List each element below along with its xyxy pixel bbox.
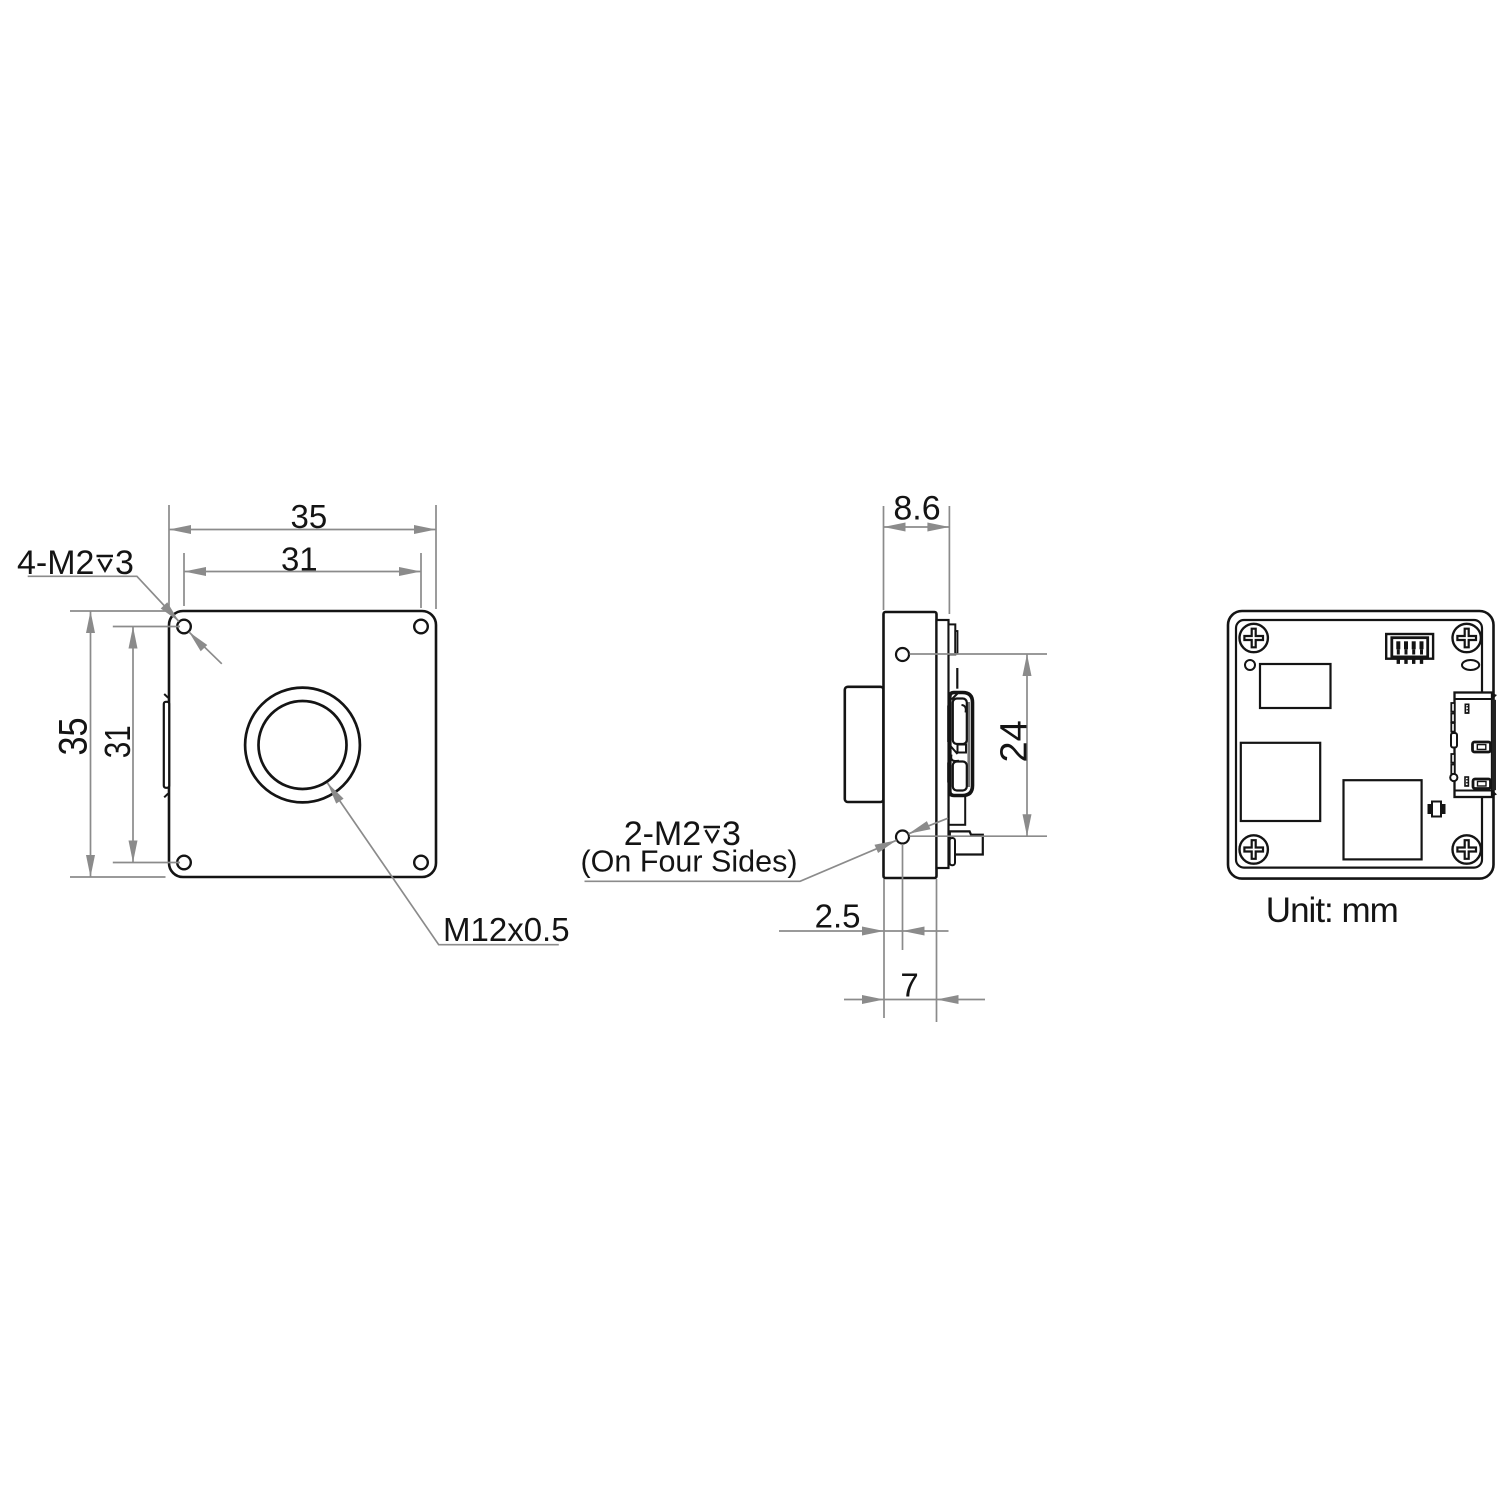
svg-text:M12x0.5: M12x0.5	[443, 911, 570, 948]
svg-text:31: 31	[97, 725, 138, 758]
svg-text:8.6: 8.6	[893, 490, 940, 528]
svg-text:24: 24	[994, 720, 1036, 762]
svg-text:31: 31	[281, 541, 318, 578]
svg-text:Unit: mm: Unit: mm	[1266, 891, 1398, 930]
svg-text:4-M2: 4-M2	[17, 544, 94, 582]
svg-text:35: 35	[291, 498, 328, 535]
svg-text:(On Four Sides): (On Four Sides)	[581, 845, 798, 879]
svg-text:2.5: 2.5	[815, 898, 861, 935]
svg-text:7: 7	[900, 967, 918, 1004]
svg-text:3: 3	[115, 544, 134, 582]
svg-text:35: 35	[51, 718, 95, 756]
